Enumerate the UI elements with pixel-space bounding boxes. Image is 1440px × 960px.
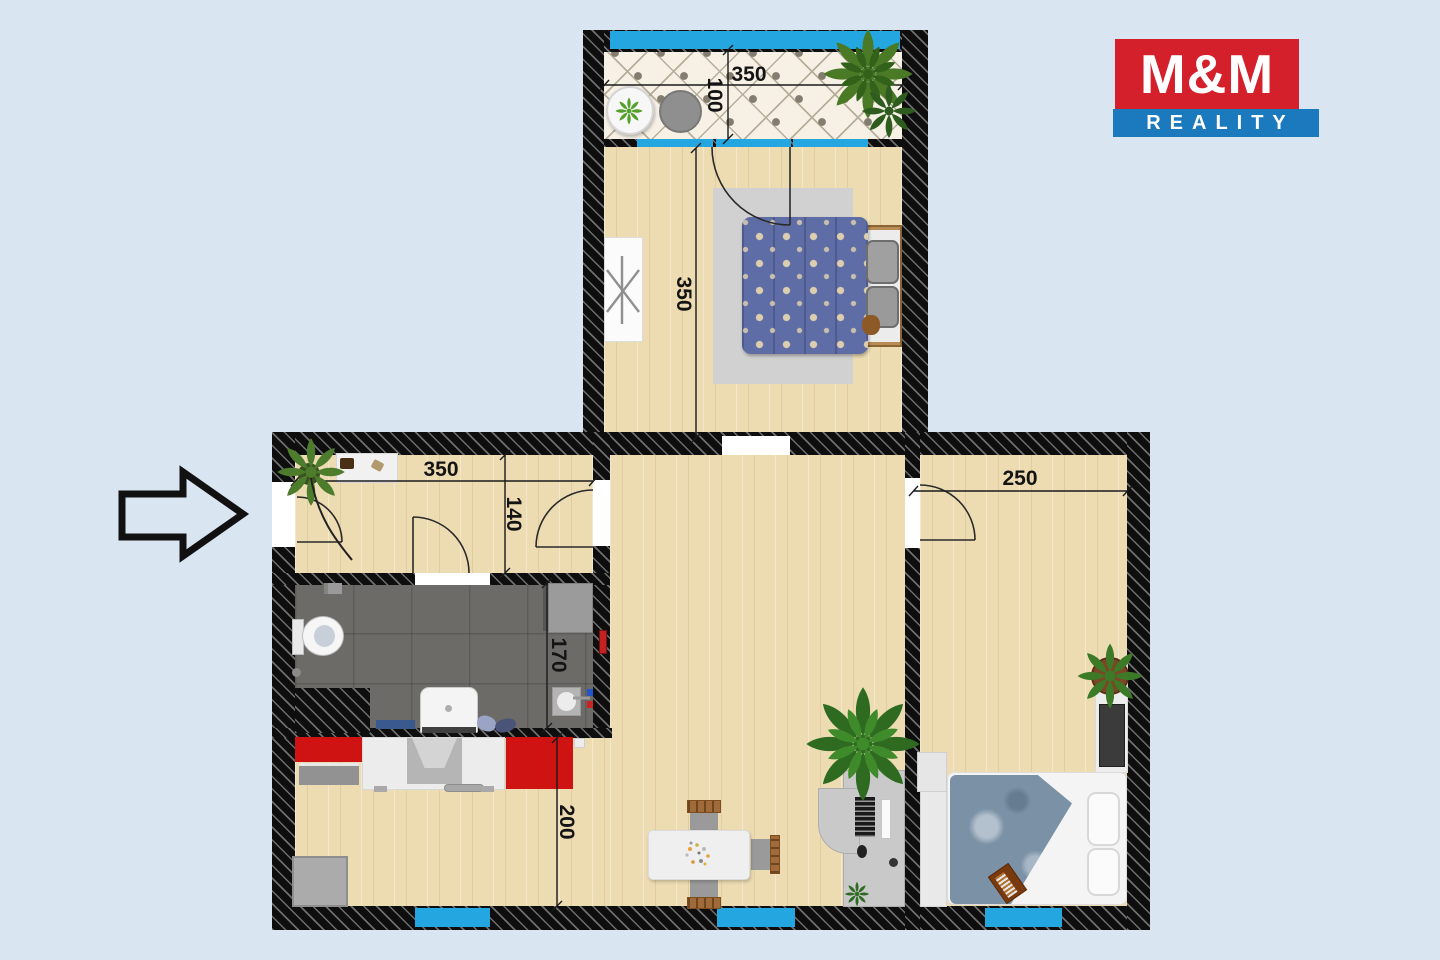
floorplan-canvas: 350 100 350 350 140 170 200 250 M&M REAL… — [0, 0, 1440, 960]
dim-hallway-width: 350 — [423, 458, 458, 482]
plan-overlay — [0, 0, 1440, 960]
plant-balcony-palm — [823, 29, 912, 118]
logo-subtitle: REALITY — [1137, 112, 1295, 135]
dim-balcony-width: 350 — [731, 63, 766, 87]
entrance-arrow-icon — [122, 472, 243, 556]
dim-balcony-depth: 100 — [702, 77, 726, 112]
dim-hallway-depth: 140 — [501, 496, 525, 531]
door-arc-balcony — [712, 147, 790, 225]
logo-title: M&M — [1140, 42, 1274, 106]
dim-bedroom-length: 350 — [671, 276, 695, 311]
plant-desk — [845, 882, 869, 906]
door-arc-bathroom — [413, 517, 469, 573]
logo-bottom-box: REALITY — [1113, 109, 1319, 137]
plant-right-room — [1078, 644, 1143, 709]
dim-living-depth: 200 — [554, 804, 578, 839]
dryer-rack-icon — [607, 256, 639, 324]
table-confetti — [685, 842, 709, 866]
agency-logo: M&M REALITY — [1113, 39, 1319, 137]
dim-room-width: 250 — [1002, 467, 1037, 491]
logo-top-box: M&M — [1115, 39, 1299, 109]
door-arc-rightroom — [920, 485, 975, 540]
plant-balcony-table — [616, 98, 643, 125]
door-arc-hall-living — [536, 490, 593, 547]
plant-balcony-bush — [862, 84, 916, 138]
dim-bathroom-depth: 170 — [546, 637, 570, 672]
plant-living-palm — [806, 687, 919, 800]
door-arc-entrance — [297, 497, 342, 542]
